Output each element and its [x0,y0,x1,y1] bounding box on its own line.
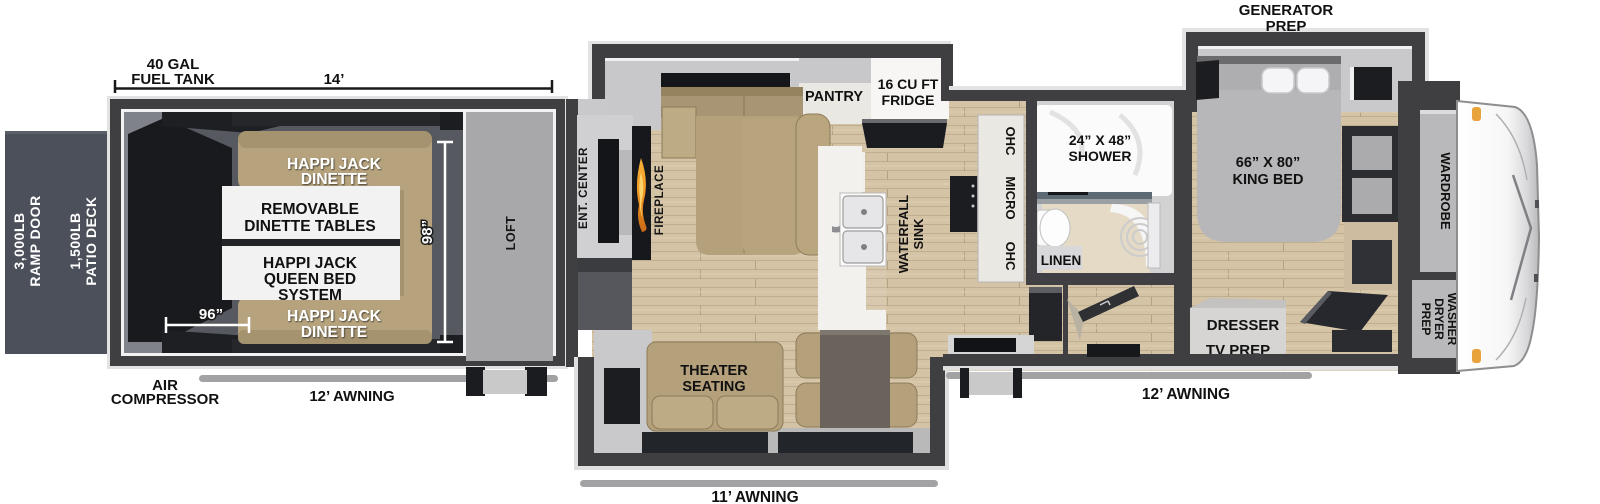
svg-text:OHC: OHC [1003,127,1018,157]
svg-text:12’ AWNING: 12’ AWNING [309,388,394,405]
svg-text:SINK: SINK [911,218,926,250]
svg-text:WARDROBE: WARDROBE [1438,152,1453,230]
svg-text:LINEN: LINEN [1041,253,1082,268]
svg-text:THEATER: THEATER [680,363,748,379]
svg-text:LOFT: LOFT [504,216,518,251]
svg-text:QUEEN BED: QUEEN BED [264,271,356,288]
svg-text:12’ AWNING: 12’ AWNING [1142,386,1230,403]
svg-text:DINETTE TABLES: DINETTE TABLES [244,218,375,235]
svg-text:HAPPI JACK: HAPPI JACK [263,255,358,272]
svg-text:GENERATOR: GENERATOR [1239,2,1334,19]
svg-text:3,000LB: 3,000LB [11,212,27,269]
svg-text:COMPRESSOR: COMPRESSOR [111,391,220,408]
svg-text:PATIO DECK: PATIO DECK [83,196,99,285]
svg-text:FUEL TANK: FUEL TANK [131,71,215,88]
svg-text:96”: 96” [199,306,223,323]
svg-text:24” X 48”: 24” X 48” [1069,132,1131,148]
svg-text:PREP: PREP [1266,18,1307,35]
svg-text:RAMP DOOR: RAMP DOOR [27,195,43,286]
svg-text:DINETTE: DINETTE [301,324,367,341]
svg-text:WATERFALL: WATERFALL [896,195,911,274]
svg-text:DINETTE: DINETTE [301,171,367,188]
svg-text:DRYER: DRYER [1432,298,1446,340]
svg-text:14’: 14’ [324,71,345,88]
svg-text:98”: 98” [419,220,436,244]
svg-text:OHC: OHC [1003,242,1018,272]
svg-text:PREP: PREP [1419,303,1433,336]
svg-text:1,500LB: 1,500LB [67,212,83,269]
svg-text:SYSTEM: SYSTEM [278,287,342,304]
svg-text:DRESSER: DRESSER [1207,317,1280,334]
svg-text:SEATING: SEATING [682,379,745,395]
svg-text:HAPPI JACK: HAPPI JACK [287,308,382,325]
svg-text:FIREPLACE: FIREPLACE [654,165,666,236]
svg-text:MICRO: MICRO [1003,176,1018,219]
svg-text:FRIDGE: FRIDGE [882,92,935,108]
svg-text:16 CU FT: 16 CU FT [878,76,939,92]
svg-text:SHOWER: SHOWER [1069,148,1132,164]
svg-text:11’ AWNING: 11’ AWNING [711,489,798,504]
svg-text:66” X 80”: 66” X 80” [1236,155,1301,171]
svg-text:PANTRY: PANTRY [805,89,863,105]
svg-text:REMOVABLE: REMOVABLE [261,201,359,218]
svg-text:ENT. CENTER: ENT. CENTER [578,147,590,229]
svg-text:KING BED: KING BED [1233,172,1304,188]
